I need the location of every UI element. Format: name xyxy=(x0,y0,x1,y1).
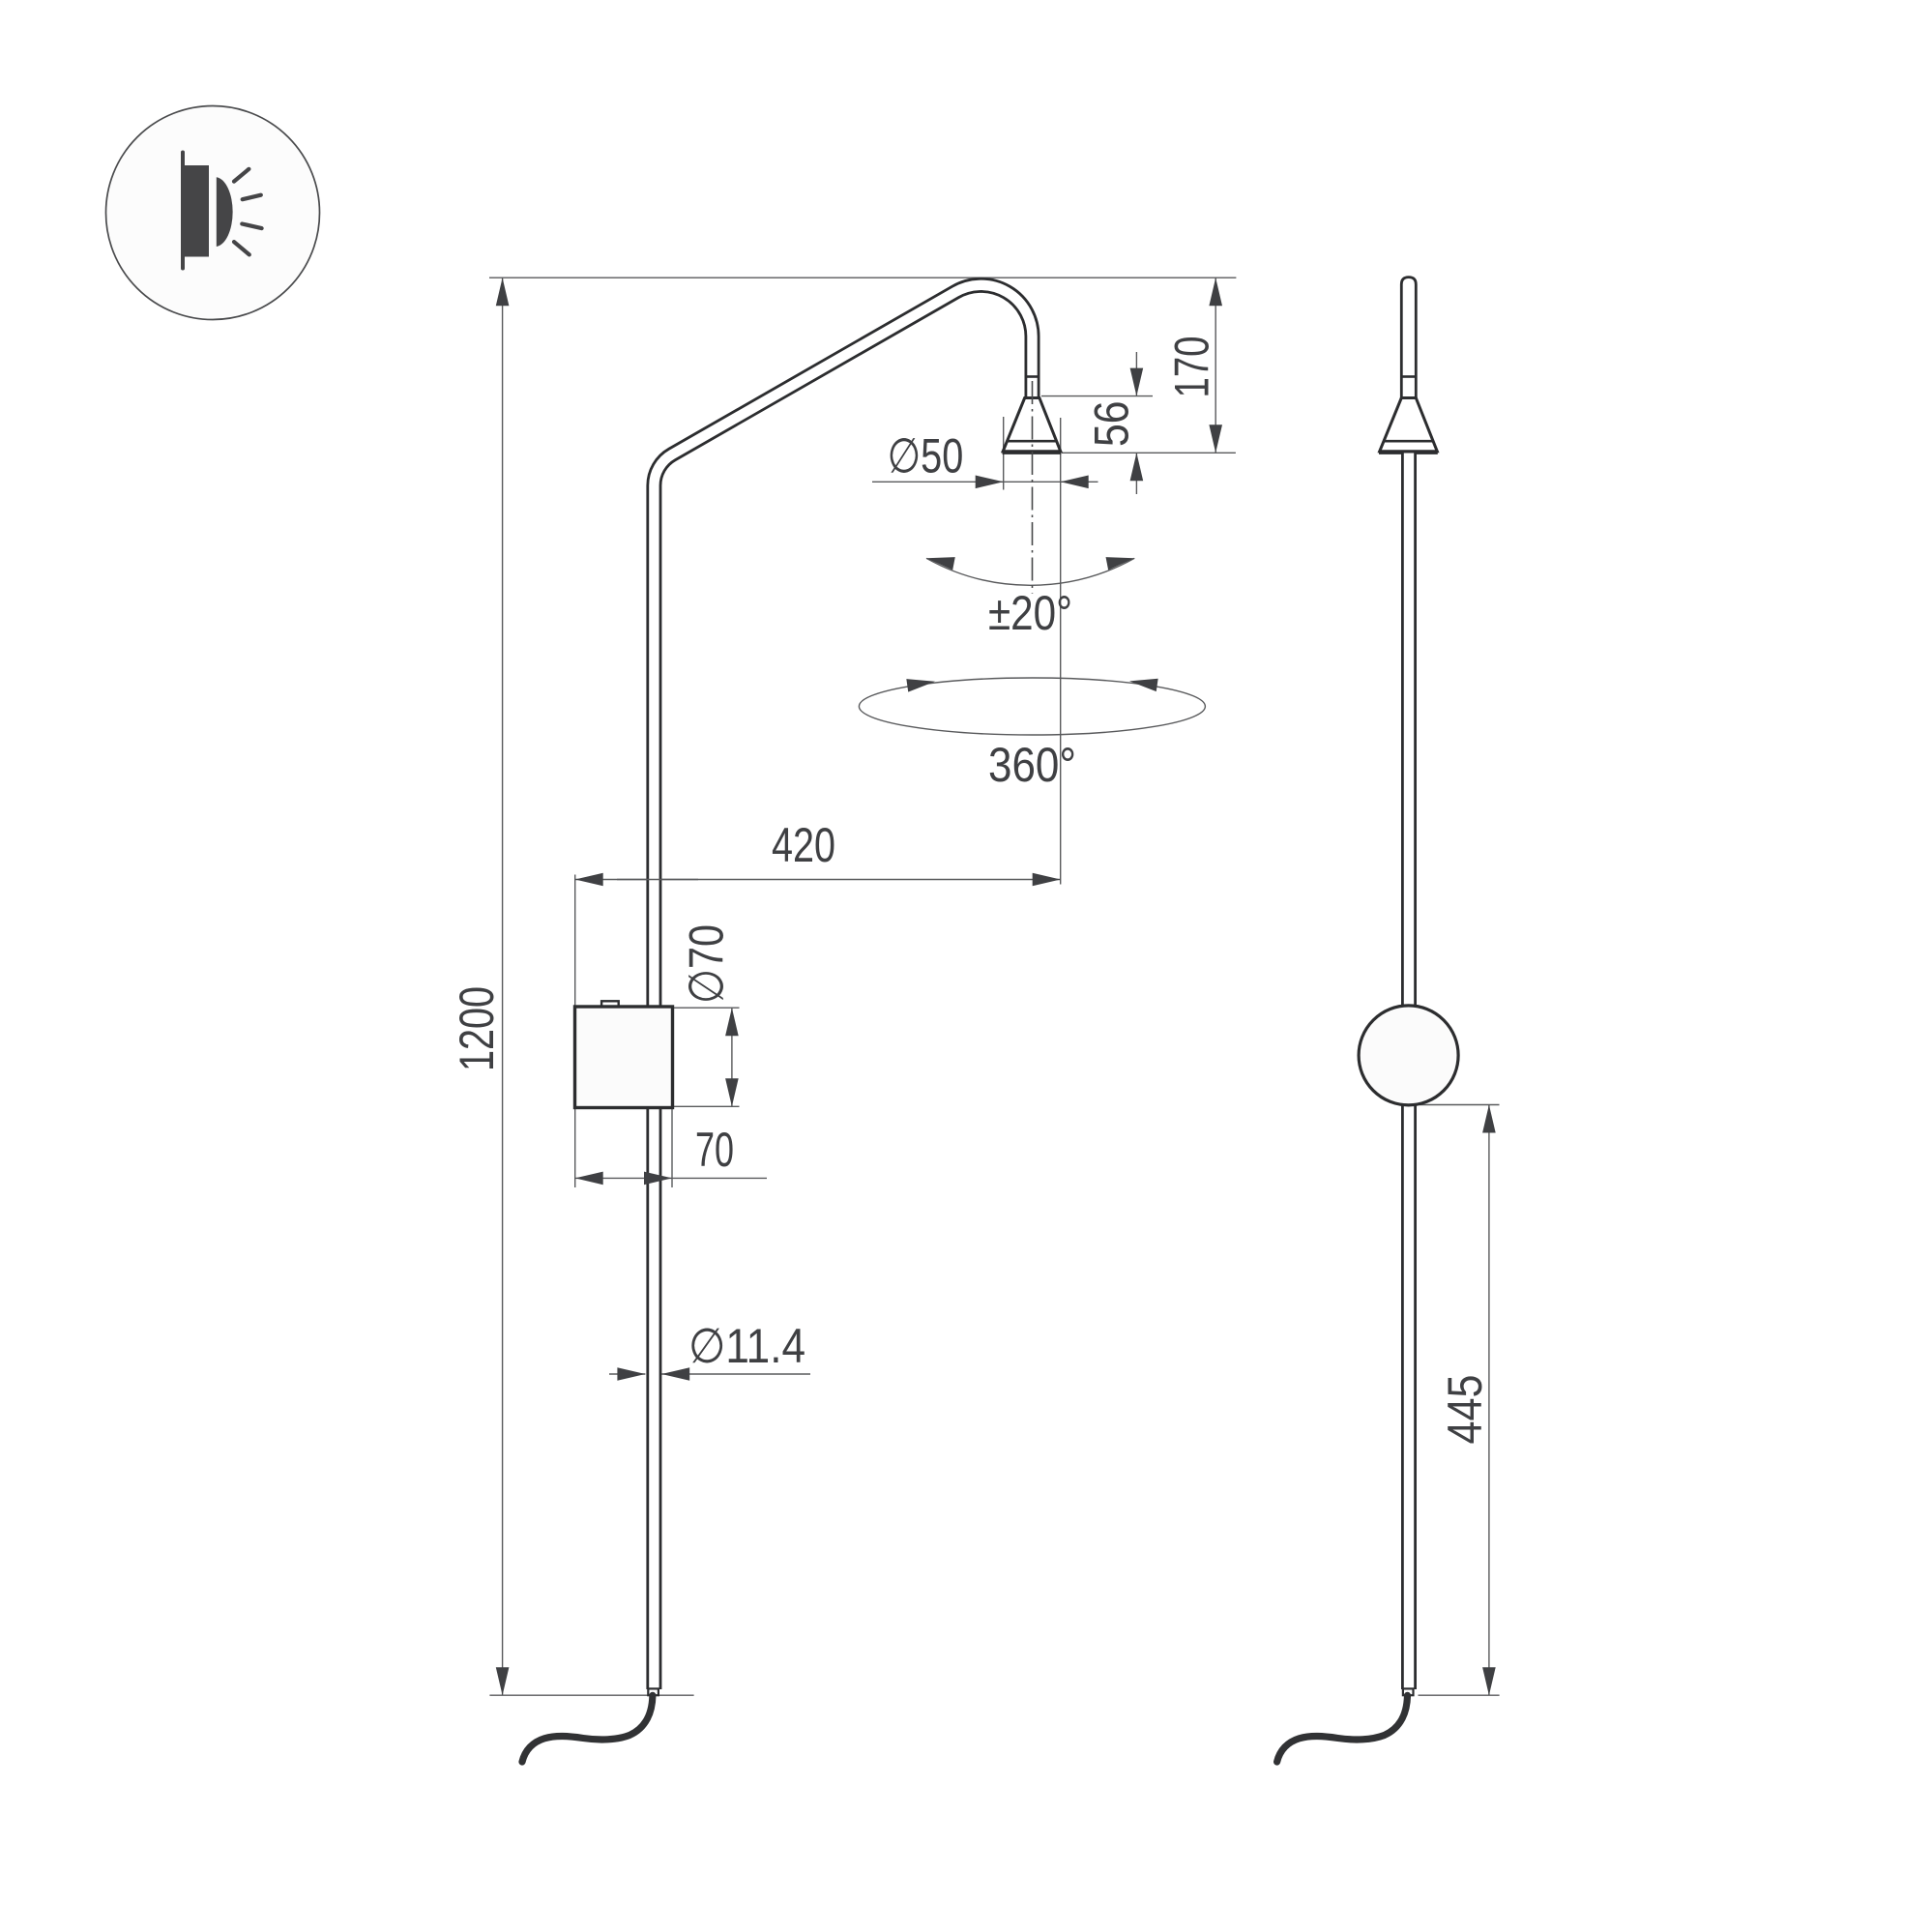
svg-text:70: 70 xyxy=(695,1123,734,1177)
svg-text:360°: 360° xyxy=(988,738,1076,792)
svg-text:1200: 1200 xyxy=(450,986,504,1071)
svg-text:∅50: ∅50 xyxy=(888,428,964,483)
svg-text:∅11.4: ∅11.4 xyxy=(688,1319,805,1373)
svg-text:445: 445 xyxy=(1438,1375,1492,1445)
svg-text:±20°: ±20° xyxy=(988,586,1072,640)
svg-text:170: 170 xyxy=(1165,337,1219,398)
svg-text:∅70: ∅70 xyxy=(680,924,734,1004)
svg-text:420: 420 xyxy=(772,818,835,872)
svg-text:56: 56 xyxy=(1085,401,1139,448)
